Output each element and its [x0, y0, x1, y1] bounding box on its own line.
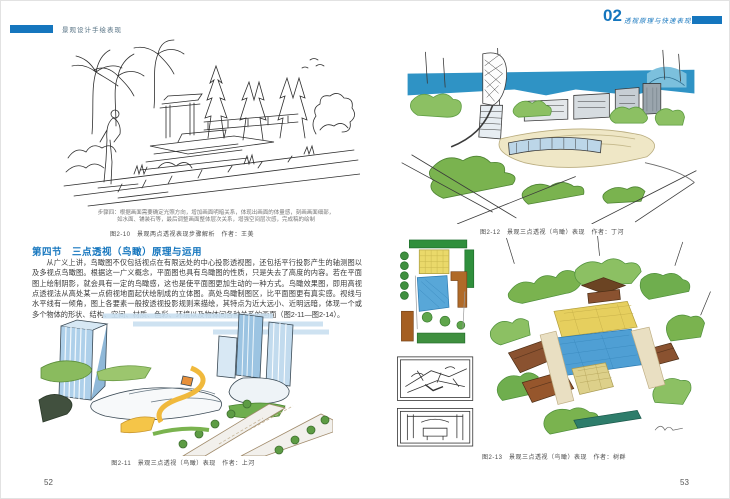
tower-linework [402, 48, 697, 224]
figure-annotation-notes: 步骤四：根据画面需要确定光照方向，增加画面明暗关系，体现出画面的体量感，刻画画面… [70, 210, 362, 225]
figure-caption-2-11: 图2-11 景观三点透视（鸟瞰）表现 作者：上河 [33, 458, 333, 467]
artist-signature-scribble [655, 426, 683, 430]
landmark-tower-sketch-illustration [396, 44, 708, 224]
garden-pencil-sketch-illustration [58, 38, 360, 208]
sketch-thumbnail-1 [397, 357, 472, 401]
page-number-right: 53 [680, 478, 689, 487]
figure-caption-2-10: 图2-10 景观两点透视表现步骤解析 作者：王美 [36, 229, 328, 238]
courtyard-plan-and-aerial-illustration [394, 236, 712, 450]
section-heading: 第四节 三点透视（鸟瞰）原理与运用 [32, 244, 362, 258]
header-rule-bar-left [10, 25, 53, 33]
running-header-left: 景观设计手绘表现 [62, 24, 122, 34]
book-spread: 景观设计手绘表现 02 透视原理与快速表现方法 [0, 0, 730, 499]
page-number-left: 52 [44, 478, 53, 487]
chapter-number: 02 [603, 6, 622, 26]
figure-caption-2-12: 图2-12 景观三点透视（鸟瞰）表现 作者：丁河 [400, 227, 704, 236]
sky-wash [103, 316, 329, 332]
city-linework [39, 314, 333, 456]
city-aerial-marker-illustration [33, 306, 333, 456]
header-rule-bar-right [692, 16, 722, 24]
courtyard-aerial-drawing [490, 236, 710, 434]
figure-caption-2-13: 图2-13 景观三点透视（鸟瞰）表现 作者：树群 [404, 452, 704, 461]
site-plan-drawing [400, 240, 473, 343]
sketch-linework [64, 40, 360, 206]
sketch-thumbnail-2 [397, 408, 472, 446]
note-line-2: 如水面、铺装石等，最后调整画面整体层次关系，增强空间层次感，完成稿的绘制 [70, 217, 362, 224]
